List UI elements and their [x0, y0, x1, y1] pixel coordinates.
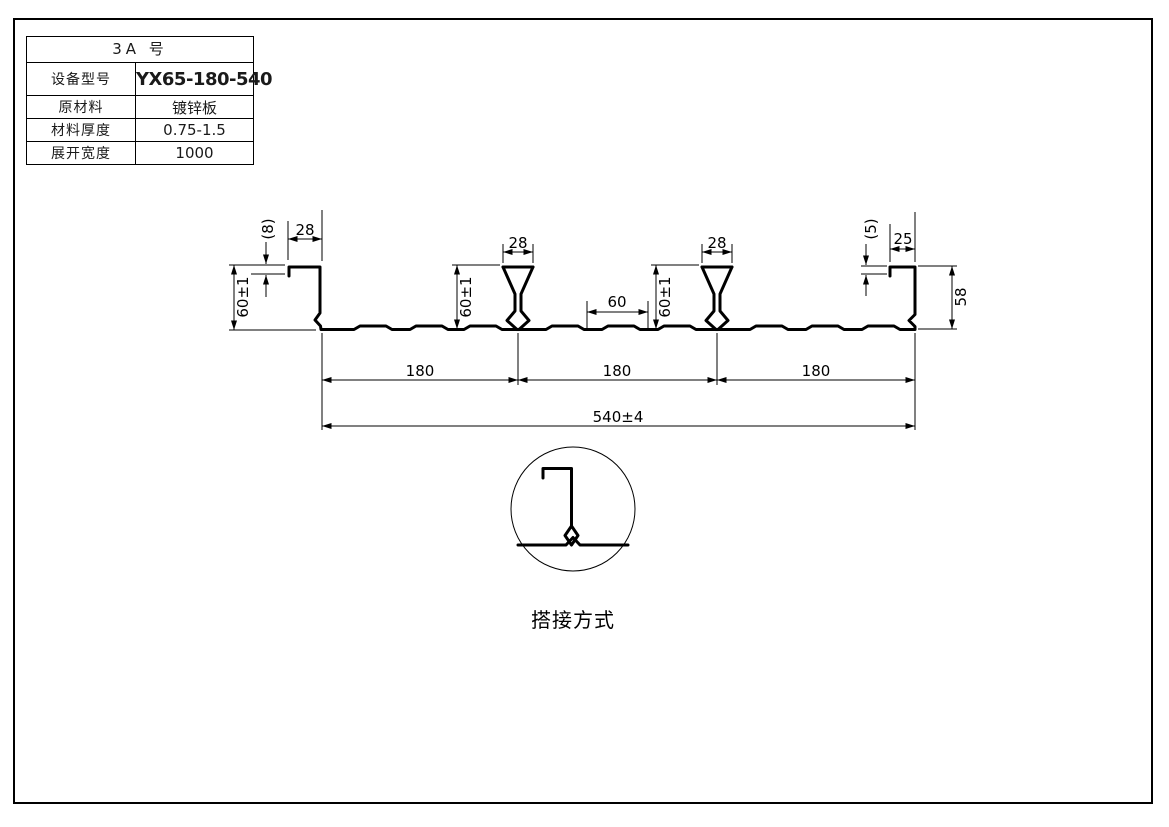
drawing-sheet: 3A 号 设备型号 YX65-180-540 原材料 镀锌板 材料厚度 0.75…	[0, 0, 1169, 827]
dim-top-right-text: 25	[893, 230, 912, 248]
dim-top-left: 28	[288, 210, 322, 261]
profile-outline	[289, 267, 915, 330]
dim-top-left-text: 28	[295, 221, 314, 239]
dim-overall: 540±4	[322, 408, 915, 426]
dim-height-left: 60±1	[229, 265, 316, 330]
dim-rib2-height-text: 60±1	[656, 276, 674, 317]
dim-height-right: 58	[918, 266, 970, 329]
dim-rib1-height: 60±1	[452, 265, 500, 329]
dim-span3-text: 180	[802, 362, 831, 380]
dim-lip-right-text: (5)	[862, 218, 880, 239]
dim-lip-left-text: (8)	[259, 218, 277, 239]
rib-1	[503, 267, 533, 330]
dim-rib2-width-text: 28	[707, 234, 726, 252]
dim-span2-text: 180	[603, 362, 632, 380]
detail-lap-profile	[543, 469, 578, 546]
dim-lip-right: (5)	[861, 218, 887, 296]
dim-height-left-text: 60±1	[234, 276, 252, 317]
profile-drawing-svg: (8) 28 60±1 28 60±1	[0, 0, 1169, 827]
rib-2	[702, 267, 732, 330]
dim-rib1-height-text: 60±1	[457, 276, 475, 317]
dim-height-right-text: 58	[952, 287, 970, 306]
dim-rib2-width: 28	[702, 234, 732, 263]
dim-overall-text: 540±4	[593, 408, 644, 426]
dim-span1-text: 180	[406, 362, 435, 380]
detail-caption: 搭接方式	[531, 608, 615, 632]
lap-joint-detail: 搭接方式	[511, 447, 635, 632]
dim-mid-flat-text: 60	[607, 293, 626, 311]
dim-rib1-width: 28	[503, 234, 533, 263]
dim-top-right: 25	[890, 212, 915, 262]
dim-rib2-height: 60±1	[651, 265, 699, 329]
dim-rib1-width-text: 28	[508, 234, 527, 252]
